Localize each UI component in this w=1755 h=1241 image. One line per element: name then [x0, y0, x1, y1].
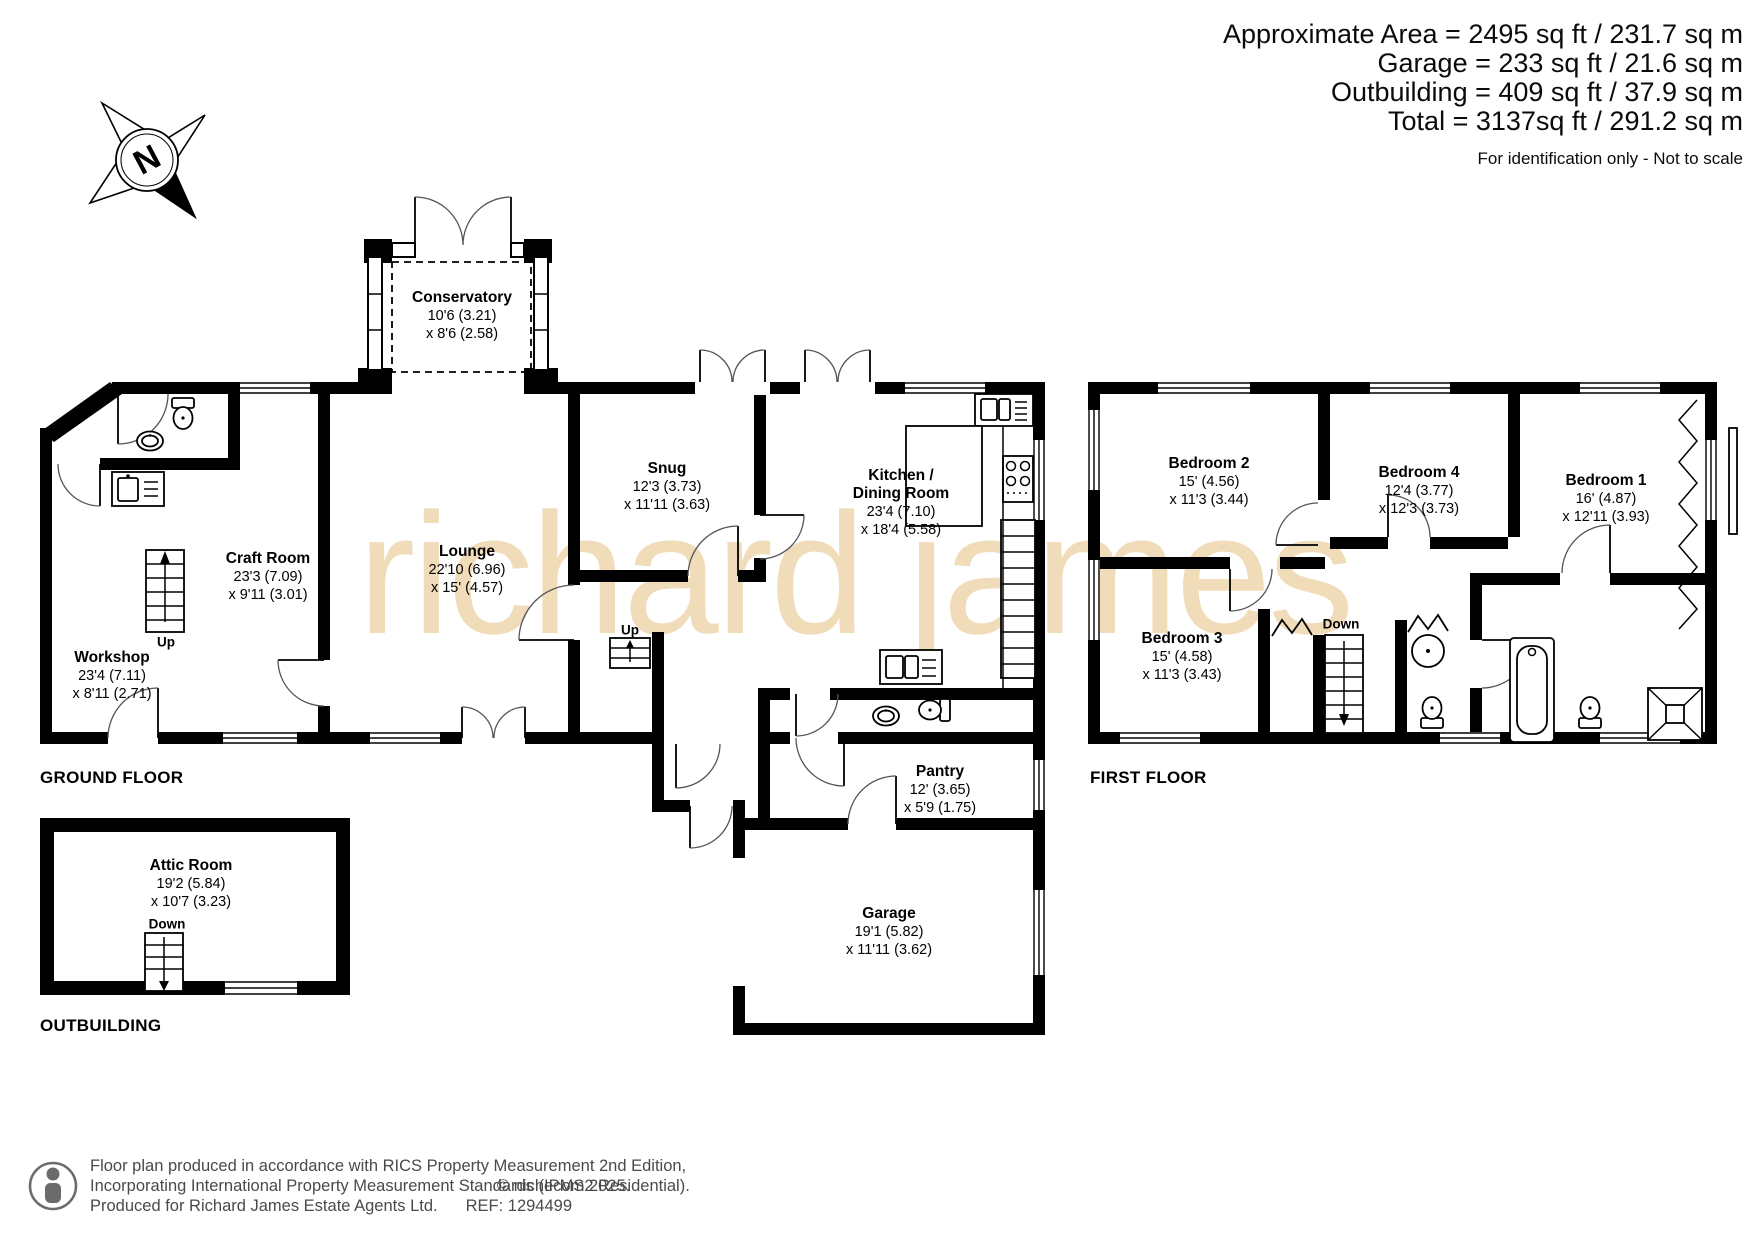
stair-label-down-outbuilding: Down: [149, 917, 186, 932]
footer-line-3: Produced for Richard James Estate Agents…: [90, 1197, 572, 1216]
room-label-bedroom-4: Bedroom 4 12'4 (3.77) x 12'3 (3.73): [1379, 464, 1460, 518]
title-outbuilding: OUTBUILDING: [40, 1016, 161, 1036]
title-ground-floor: GROUND FLOOR: [40, 768, 183, 788]
room-label-attic-room: Attic Room 19'2 (5.84) x 10'7 (3.23): [150, 857, 233, 911]
area-line: Outbuilding = 409 sq ft / 37.9 sq m: [1223, 78, 1743, 107]
area-line: Total = 3137sq ft / 291.2 sq m: [1223, 107, 1743, 136]
footer-copyright: © nichecom 2025.: [497, 1177, 630, 1196]
scale-disclaimer: For identification only - Not to scale: [1223, 144, 1743, 173]
footer-produced-for: Produced for Richard James Estate Agents…: [90, 1197, 438, 1215]
room-label-kitchen-dining: Kitchen / Dining Room 23'4 (7.10) x 18'4…: [853, 467, 949, 539]
stair-label-up-hall: Up: [621, 623, 639, 638]
room-label-workshop: Workshop 23'4 (7.11) x 8'11 (2.71): [72, 649, 151, 703]
room-label-bedroom-1: Bedroom 1 16' (4.87) x 12'11 (3.93): [1562, 472, 1649, 526]
area-summary: Approximate Area = 2495 sq ft / 231.7 sq…: [1223, 20, 1743, 173]
footer-line-1: Floor plan produced in accordance with R…: [90, 1157, 686, 1176]
stair-label-up-workshop: Up: [157, 635, 175, 650]
room-label-bedroom-2: Bedroom 2 15' (4.56) x 11'3 (3.44): [1169, 455, 1250, 509]
area-line: Garage = 233 sq ft / 21.6 sq m: [1223, 49, 1743, 78]
room-label-pantry: Pantry 12' (3.65) x 5'9 (1.75): [904, 763, 976, 817]
footer-ref: REF: 1294499: [466, 1197, 572, 1215]
room-label-conservatory: Conservatory 10'6 (3.21) x 8'6 (2.58): [412, 289, 512, 343]
stair-label-down-first-floor: Down: [1323, 617, 1360, 632]
label-layer: Approximate Area = 2495 sq ft / 231.7 sq…: [0, 0, 1755, 1241]
room-label-garage: Garage 19'1 (5.82) x 11'11 (3.62): [846, 905, 932, 959]
room-label-bedroom-3: Bedroom 3 15' (4.58) x 11'3 (3.43): [1142, 630, 1223, 684]
title-first-floor: FIRST FLOOR: [1090, 768, 1207, 788]
room-label-craft-room: Craft Room 23'3 (7.09) x 9'11 (3.01): [226, 550, 310, 604]
area-line: Approximate Area = 2495 sq ft / 231.7 sq…: [1223, 20, 1743, 49]
room-label-lounge: Lounge 22'10 (6.96) x 15' (4.57): [429, 543, 506, 597]
floorplan-page: richard james: [0, 0, 1755, 1241]
room-label-snug: Snug 12'3 (3.73) x 11'11 (3.63): [624, 460, 710, 514]
